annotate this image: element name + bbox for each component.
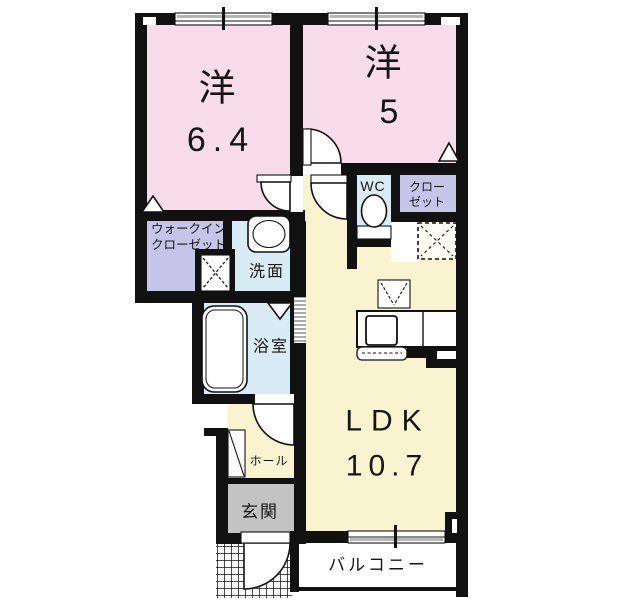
label-western2-name: 洋 (365, 43, 402, 84)
shoe-cabinet (228, 430, 245, 477)
label-closet-line1: クロー (409, 180, 445, 194)
corner-notch (143, 17, 156, 25)
washing-machine-area (201, 255, 230, 291)
kitchen-sink (366, 316, 397, 345)
balcony-railing (298, 587, 457, 591)
floor-plan-drawing: 洋 6.4 洋 5 LDK 10.7 WC クロー ゼット ウォークイン クロー… (0, 0, 617, 612)
label-western1-size: 6.4 (187, 121, 255, 159)
wall-segment (347, 163, 357, 269)
label-entrance: 玄関 (241, 503, 279, 522)
label-wic-line2: クローゼット (151, 238, 226, 252)
label-western2-size: 5 (380, 93, 399, 131)
wall-segment (216, 428, 228, 533)
kitchen-wall-slot (437, 351, 456, 359)
wall-segment (135, 13, 147, 303)
floor-plan: 洋 6.4 洋 5 LDK 10.7 WC クロー ゼット ウォークイン クロー… (0, 0, 617, 612)
wall-segment (192, 291, 306, 303)
label-wc: WC (360, 178, 385, 194)
wall-segment (391, 212, 456, 222)
label-ldk-size: 10.7 (346, 450, 428, 483)
label-closet-line2: ゼット (409, 195, 445, 209)
stove-hood-marker (378, 280, 410, 308)
balcony-side-wall (290, 531, 299, 592)
corner-notch (441, 17, 460, 25)
washroom-sliding-door-hatch (294, 297, 306, 343)
label-balcony: バルコニー (328, 556, 428, 575)
wall-slot (452, 519, 457, 533)
wall-segment (216, 533, 242, 544)
wall-segment (290, 25, 303, 167)
label-ldk-name: LDK (345, 405, 430, 438)
wc-door-opening (391, 222, 418, 262)
kitchen-wall (426, 358, 457, 368)
label-washroom: 洗面 (249, 263, 285, 281)
wall-segment (192, 396, 228, 404)
door-opening (255, 394, 294, 404)
refrigerator-area (418, 223, 456, 259)
label-hall: ホール (249, 454, 288, 468)
entrance-step-line (228, 478, 294, 484)
door-opening (290, 176, 303, 212)
label-wic-line1: ウォークイン (151, 222, 226, 236)
label-western1-name: 洋 (199, 68, 236, 109)
label-bathroom: 浴室 (253, 338, 289, 356)
wall-segment (456, 13, 468, 597)
washroom-sink (248, 216, 290, 252)
bathtub (202, 306, 247, 392)
wall-segment (294, 404, 306, 532)
